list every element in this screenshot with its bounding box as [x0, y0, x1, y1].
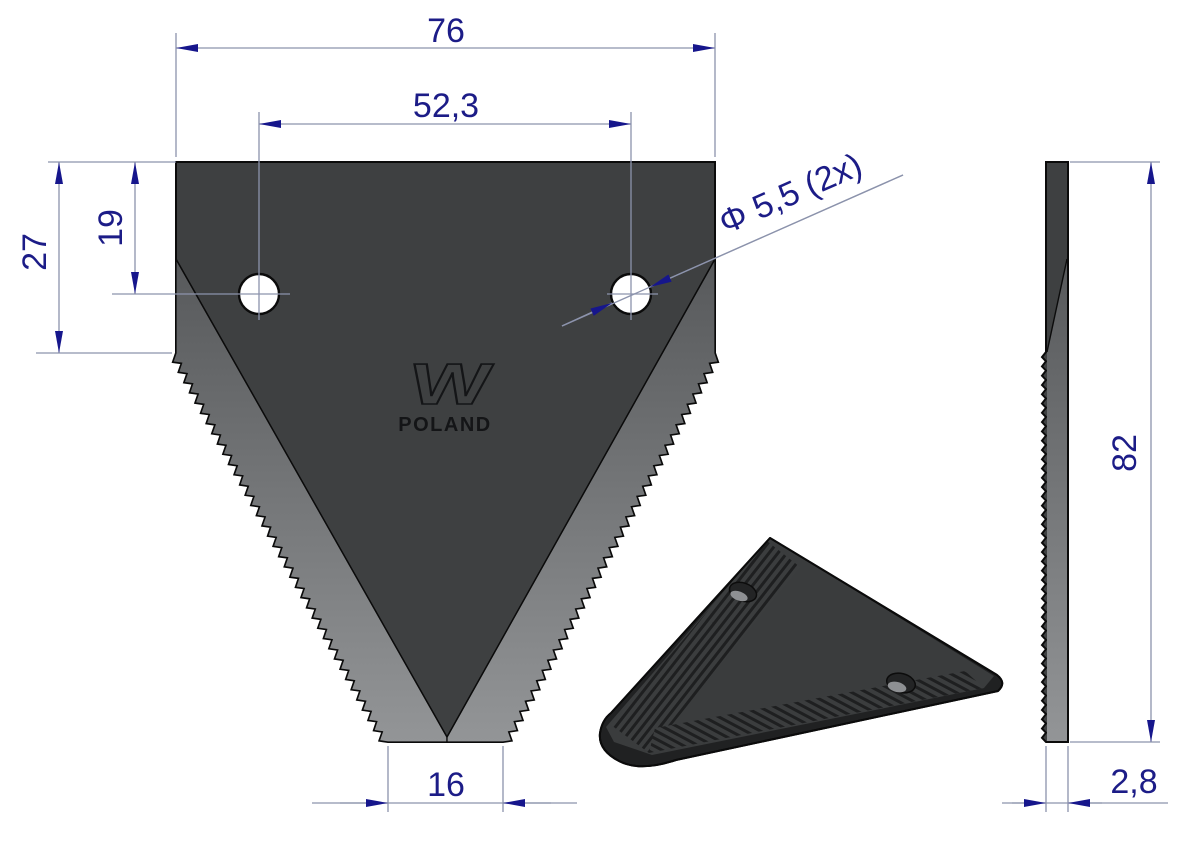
side-view	[1042, 162, 1068, 742]
dim-edge-height-label: 27	[16, 233, 54, 271]
dim-edge-height-extensions	[36, 162, 176, 353]
iso-view	[600, 538, 1002, 766]
dim-overall-width: 76	[176, 12, 715, 157]
front-view: W POLAND	[173, 162, 718, 742]
dim-tip-width-label: 16	[427, 766, 465, 804]
dim-thickness-extensions	[1046, 746, 1068, 812]
dim-edge-height: 27	[16, 162, 176, 353]
dim-hole-offset-label: 19	[92, 209, 130, 247]
dim-hole-spacing-label: 52,3	[413, 87, 479, 125]
dim-blade-height-label: 82	[1106, 434, 1144, 472]
dim-tip-width: 16	[312, 746, 577, 812]
dim-overall-width-label: 76	[427, 12, 465, 50]
dim-hole-diameter-label: Φ 5,5 (2x)	[713, 146, 867, 242]
dim-blade-height: 82	[1070, 162, 1160, 742]
dim-thickness: 2,8	[1002, 746, 1168, 812]
dim-thickness-label: 2,8	[1110, 763, 1157, 801]
logo-country: POLAND	[398, 414, 491, 436]
technical-drawing-page: W POLAND 76 52,3	[0, 0, 1191, 842]
drawing-svg: W POLAND 76 52,3	[0, 0, 1191, 842]
logo-mark: W	[405, 352, 496, 417]
